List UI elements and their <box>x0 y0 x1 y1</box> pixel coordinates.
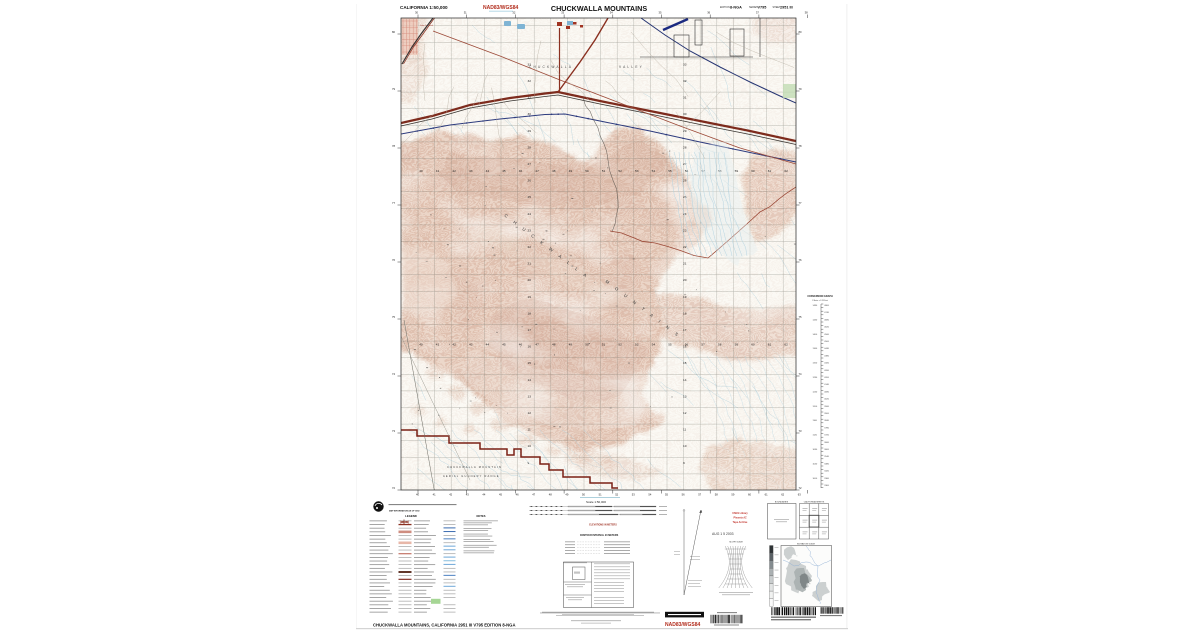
svg-text:Scale 1:50,000: Scale 1:50,000 <box>586 500 606 504</box>
svg-text:53: 53 <box>635 343 639 347</box>
svg-text:57: 57 <box>698 493 701 497</box>
svg-text:50: 50 <box>585 169 589 173</box>
svg-text:CHUCKWALLA: CHUCKWALLA <box>529 65 573 69</box>
svg-text:Tape Archive: Tape Archive <box>733 521 748 524</box>
svg-text:48: 48 <box>549 493 552 497</box>
svg-text:74: 74 <box>799 372 802 376</box>
svg-text:79: 79 <box>392 87 395 91</box>
svg-text:42: 42 <box>452 169 456 173</box>
svg-text:56: 56 <box>682 493 685 497</box>
svg-text:Phoenix AZ: Phoenix AZ <box>733 517 747 520</box>
svg-text:14: 14 <box>528 378 532 382</box>
svg-text:54: 54 <box>652 343 656 347</box>
svg-text:47: 47 <box>532 493 535 497</box>
svg-text:27: 27 <box>528 162 532 166</box>
svg-text:52: 52 <box>618 169 622 173</box>
svg-text:58: 58 <box>715 493 718 497</box>
svg-text:17: 17 <box>683 328 687 332</box>
svg-text:72: 72 <box>392 486 395 490</box>
svg-text:24: 24 <box>528 212 532 216</box>
svg-text:73: 73 <box>799 429 802 433</box>
svg-text:40: 40 <box>416 493 419 497</box>
svg-text:ELEVATIONS IN METERS: ELEVATIONS IN METERS <box>589 523 617 526</box>
svg-text:NAD83/WGS84: NAD83/WGS84 <box>665 622 701 628</box>
svg-text:60: 60 <box>748 493 751 497</box>
svg-text:19: 19 <box>528 295 532 299</box>
svg-text:NOTES: NOTES <box>477 514 486 518</box>
svg-text:44: 44 <box>482 493 485 497</box>
svg-text:37: 37 <box>756 11 759 15</box>
svg-text:15: 15 <box>528 361 532 365</box>
svg-text:75: 75 <box>392 315 395 319</box>
svg-text:11: 11 <box>683 428 686 432</box>
svg-text:16: 16 <box>528 345 532 349</box>
svg-text:CHUCKWALLA MOUNTAIN: CHUCKWALLA MOUNTAIN <box>447 465 502 469</box>
svg-text:CHUCKWALLA MOUNTAINS, CALIFOR: CHUCKWALLA MOUNTAINS, CALIFORNIA 2951 II… <box>373 623 515 628</box>
svg-text:76: 76 <box>392 258 395 262</box>
svg-text:13: 13 <box>683 394 687 398</box>
svg-text:25: 25 <box>528 195 532 199</box>
svg-text:55: 55 <box>665 493 668 497</box>
svg-text:26: 26 <box>683 179 687 183</box>
svg-text:25: 25 <box>683 195 687 199</box>
svg-text:36: 36 <box>707 11 710 15</box>
svg-text:32: 32 <box>528 79 532 83</box>
svg-text:50: 50 <box>585 343 589 347</box>
svg-text:32: 32 <box>683 79 687 83</box>
svg-text:62: 62 <box>784 343 788 347</box>
svg-text:75: 75 <box>799 315 802 319</box>
svg-text:46: 46 <box>519 343 523 347</box>
svg-text:33: 33 <box>683 62 687 66</box>
svg-text:41: 41 <box>436 169 440 173</box>
svg-text:52: 52 <box>615 493 618 497</box>
svg-text:62: 62 <box>781 493 784 497</box>
svg-text:30: 30 <box>683 112 687 116</box>
svg-text:78: 78 <box>392 144 395 148</box>
svg-text:51: 51 <box>599 493 602 497</box>
svg-text:74: 74 <box>392 372 395 376</box>
svg-text:56: 56 <box>685 169 689 173</box>
svg-text:BOUNDARIES: BOUNDARIES <box>775 501 789 504</box>
svg-text:52: 52 <box>618 343 622 347</box>
svg-text:44: 44 <box>486 343 490 347</box>
svg-text:62: 62 <box>784 169 788 173</box>
svg-text:55: 55 <box>668 343 672 347</box>
svg-text:59: 59 <box>731 493 734 497</box>
svg-text:29: 29 <box>683 129 687 133</box>
svg-text:48: 48 <box>552 343 556 347</box>
svg-text:20: 20 <box>683 278 687 282</box>
svg-text:30: 30 <box>415 11 418 15</box>
svg-text:60: 60 <box>751 169 755 173</box>
svg-text:43: 43 <box>469 169 473 173</box>
svg-text:79: 79 <box>799 87 802 91</box>
svg-text:43: 43 <box>466 493 469 497</box>
svg-text:14: 14 <box>683 378 687 382</box>
svg-text:9: 9 <box>683 461 685 465</box>
svg-text:11: 11 <box>528 428 531 432</box>
svg-text:46: 46 <box>516 493 519 497</box>
svg-text:CALIFORNIA SHEETS: CALIFORNIA SHEETS <box>804 501 825 504</box>
svg-text:12: 12 <box>683 411 687 415</box>
svg-text:33: 33 <box>561 11 564 15</box>
svg-text:54: 54 <box>648 493 651 497</box>
svg-text:2951 III: 2951 III <box>780 6 793 10</box>
svg-text:13: 13 <box>528 394 532 398</box>
svg-text:AERIAL GUNNERY RANGE: AERIAL GUNNERY RANGE <box>443 474 500 478</box>
svg-text:21: 21 <box>683 262 687 266</box>
svg-text:40: 40 <box>419 169 423 173</box>
svg-text:34: 34 <box>610 11 613 15</box>
svg-text:19: 19 <box>683 295 687 299</box>
svg-text:45: 45 <box>502 343 506 347</box>
svg-text:AUG 1 5 2003: AUG 1 5 2003 <box>712 532 734 536</box>
svg-text:18: 18 <box>528 311 532 315</box>
svg-text:41: 41 <box>436 343 440 347</box>
svg-text:21: 21 <box>528 262 532 266</box>
svg-text:35: 35 <box>659 11 662 15</box>
svg-text:47: 47 <box>535 343 539 347</box>
svg-text:EDITION: EDITION <box>720 6 730 9</box>
svg-text:31: 31 <box>683 96 687 100</box>
svg-text:LEGEND: LEGEND <box>405 514 417 518</box>
svg-text:12: 12 <box>528 411 532 415</box>
svg-text:45: 45 <box>502 169 506 173</box>
svg-text:41: 41 <box>433 493 436 497</box>
svg-text:43: 43 <box>469 343 473 347</box>
svg-text:45: 45 <box>499 493 502 497</box>
svg-text:10: 10 <box>528 444 532 448</box>
svg-text:31: 31 <box>464 11 467 15</box>
svg-text:53: 53 <box>635 169 639 173</box>
svg-text:CONTOUR INTERVAL 20 METERS: CONTOUR INTERVAL 20 METERS <box>580 534 619 537</box>
svg-text:55: 55 <box>668 169 672 173</box>
svg-text:51: 51 <box>602 343 606 347</box>
svg-text:VALLEY: VALLEY <box>619 65 644 69</box>
svg-text:V795: V795 <box>758 6 767 10</box>
svg-text:USGS Library: USGS Library <box>732 512 748 515</box>
svg-text:CONVERSION GRAPH: CONVERSION GRAPH <box>807 295 833 298</box>
svg-text:29: 29 <box>528 129 532 133</box>
svg-text:49: 49 <box>569 169 573 173</box>
svg-text:1 Meter = 3.28 Feet: 1 Meter = 3.28 Feet <box>812 299 828 302</box>
svg-text:49: 49 <box>565 493 568 497</box>
svg-text:15: 15 <box>683 361 687 365</box>
svg-text:26: 26 <box>528 179 532 183</box>
svg-text:NAD83/WGS84: NAD83/WGS84 <box>483 5 519 11</box>
svg-text:44: 44 <box>486 169 490 173</box>
svg-text:73: 73 <box>392 429 395 433</box>
svg-text:57: 57 <box>701 343 705 347</box>
svg-text:78: 78 <box>799 144 802 148</box>
svg-text:16: 16 <box>683 345 687 349</box>
svg-text:59: 59 <box>735 343 739 347</box>
svg-text:32: 32 <box>512 11 515 15</box>
svg-text:22: 22 <box>683 245 687 249</box>
svg-text:61: 61 <box>765 493 768 497</box>
svg-text:60: 60 <box>751 343 755 347</box>
svg-text:51: 51 <box>602 169 606 173</box>
svg-text:CALIFORNIA 1:50,000: CALIFORNIA 1:50,000 <box>400 5 448 10</box>
svg-text:61: 61 <box>768 169 772 173</box>
svg-text:80: 80 <box>799 30 802 34</box>
svg-text:38: 38 <box>805 11 808 15</box>
svg-text:17: 17 <box>528 328 532 332</box>
svg-text:42: 42 <box>449 493 452 497</box>
svg-text:22: 22 <box>528 245 532 249</box>
svg-text:ELEVATION GUIDE: ELEVATION GUIDE <box>797 542 815 545</box>
svg-text:77: 77 <box>799 201 802 205</box>
svg-text:18: 18 <box>683 311 687 315</box>
svg-text:MAP INFORMATION AS OF 1992: MAP INFORMATION AS OF 1992 <box>389 510 420 513</box>
svg-text:61: 61 <box>768 343 772 347</box>
svg-text:20: 20 <box>528 278 532 282</box>
svg-text:53: 53 <box>632 493 635 497</box>
svg-text:54: 54 <box>652 169 656 173</box>
svg-text:8-NGA: 8-NGA <box>730 6 742 10</box>
svg-text:50: 50 <box>582 493 585 497</box>
svg-text:48: 48 <box>552 169 556 173</box>
svg-text:46: 46 <box>519 169 523 173</box>
svg-text:23: 23 <box>683 228 687 232</box>
svg-text:72: 72 <box>799 486 802 490</box>
svg-text:10: 10 <box>683 444 687 448</box>
svg-text:80: 80 <box>392 30 395 34</box>
svg-text:42: 42 <box>452 343 456 347</box>
svg-text:47: 47 <box>535 169 539 173</box>
svg-text:28: 28 <box>528 145 532 149</box>
svg-text:28: 28 <box>683 145 687 149</box>
svg-text:49: 49 <box>569 343 573 347</box>
svg-text:SLOPE GUIDE: SLOPE GUIDE <box>729 542 743 544</box>
svg-text:40: 40 <box>419 343 423 347</box>
svg-text:77: 77 <box>392 201 395 205</box>
svg-text:CHUCKWALLA MOUNTAINS: CHUCKWALLA MOUNTAINS <box>551 4 647 13</box>
svg-text:63: 63 <box>798 493 801 497</box>
svg-text:76: 76 <box>799 258 802 262</box>
svg-text:58: 58 <box>718 343 722 347</box>
